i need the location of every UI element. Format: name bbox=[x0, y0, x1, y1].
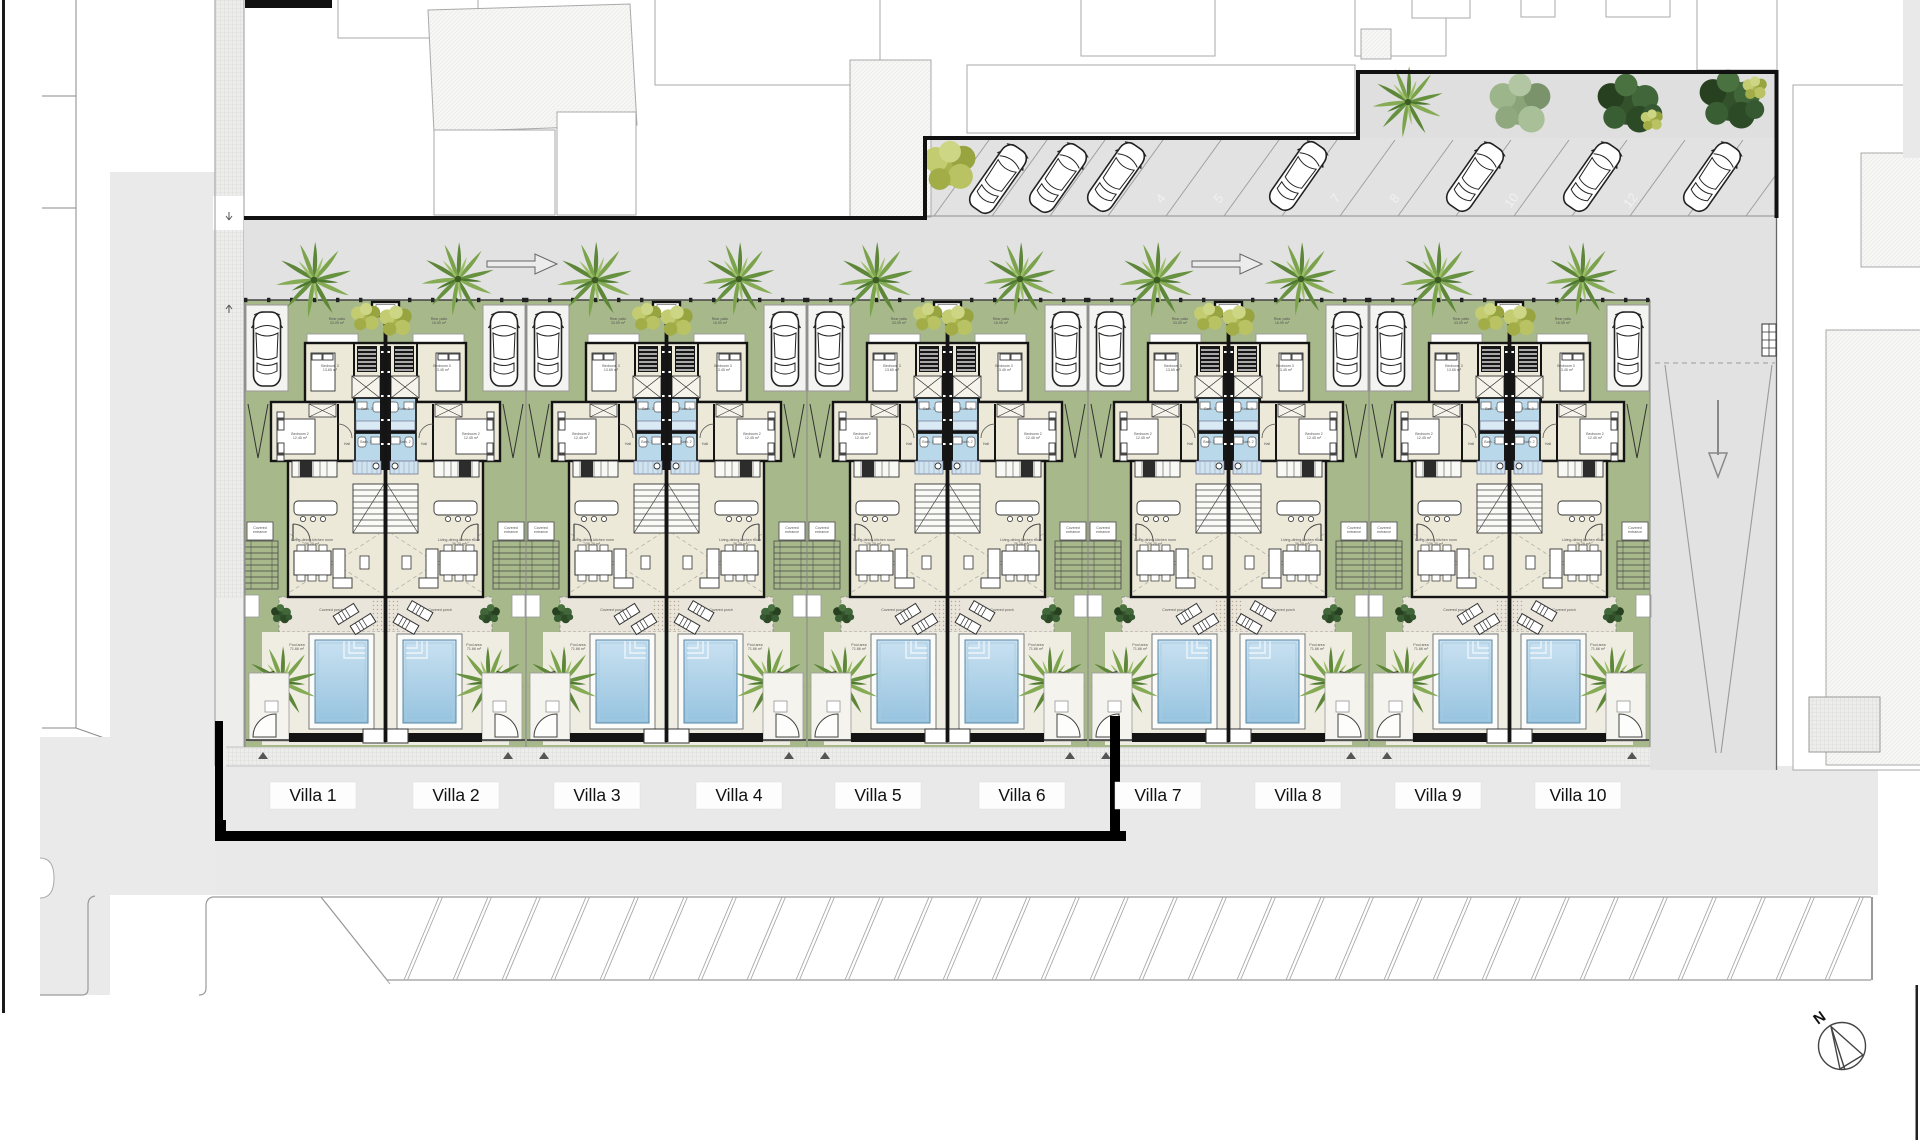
svg-text:Villa 10: Villa 10 bbox=[1549, 785, 1606, 805]
svg-text:Villa 9: Villa 9 bbox=[1414, 785, 1461, 805]
svg-text:Villa 1: Villa 1 bbox=[289, 785, 336, 805]
svg-text:Villa 7: Villa 7 bbox=[1134, 785, 1181, 805]
svg-text:Villa 6: Villa 6 bbox=[998, 785, 1045, 805]
svg-text:Villa 2: Villa 2 bbox=[432, 785, 479, 805]
svg-text:Villa 8: Villa 8 bbox=[1274, 785, 1321, 805]
svg-text:Villa 3: Villa 3 bbox=[573, 785, 620, 805]
svg-text:Villa 5: Villa 5 bbox=[854, 785, 901, 805]
svg-text:Villa 4: Villa 4 bbox=[715, 785, 763, 805]
